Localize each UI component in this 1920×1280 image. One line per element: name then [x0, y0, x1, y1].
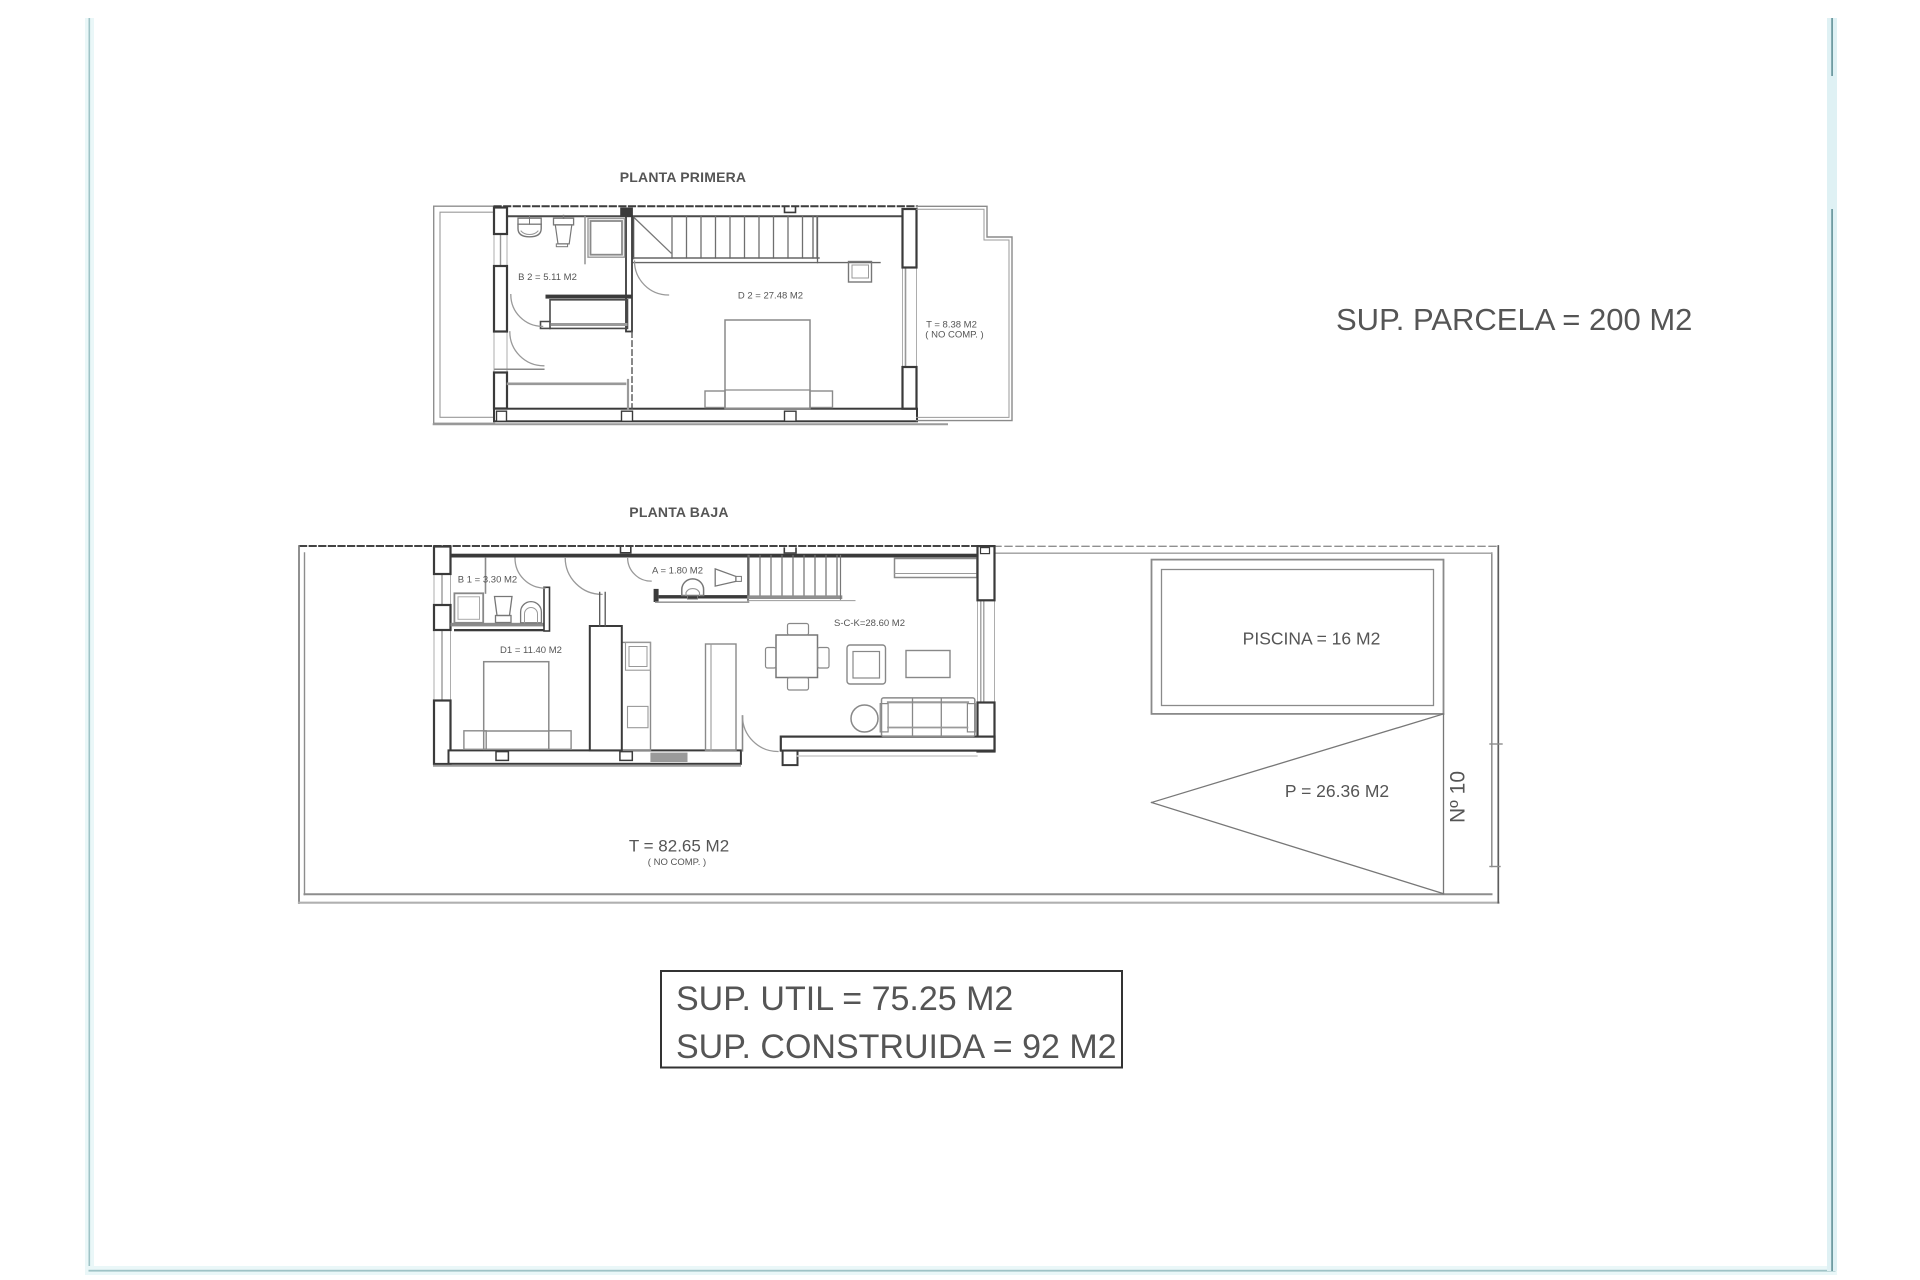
- svg-text:PLANTA BAJA: PLANTA BAJA: [629, 504, 728, 520]
- svg-text:B 1 = 3.30 M2: B 1 = 3.30 M2: [458, 575, 517, 586]
- svg-text:( NO COMP. ): ( NO COMP. ): [648, 857, 706, 868]
- svg-text:Nº 10: Nº 10: [1447, 771, 1470, 823]
- svg-text:SUP. CONSTRUIDA = 92 M2: SUP. CONSTRUIDA = 92 M2: [676, 1028, 1117, 1066]
- svg-text:S-C-K=28.60 M2: S-C-K=28.60 M2: [834, 618, 905, 629]
- svg-text:PISCINA = 16 M2: PISCINA = 16 M2: [1243, 629, 1381, 649]
- svg-text:SUP. PARCELA = 200 M2: SUP. PARCELA = 200 M2: [1336, 302, 1692, 337]
- svg-text:D1 = 11.40 M2: D1 = 11.40 M2: [500, 645, 562, 656]
- svg-text:SUP. UTIL = 75.25 M2: SUP. UTIL = 75.25 M2: [676, 980, 1013, 1018]
- svg-text:D 2 = 27.48 M2: D 2 = 27.48 M2: [738, 291, 803, 302]
- svg-text:A = 1.80 M2: A = 1.80 M2: [652, 566, 703, 577]
- svg-text:P = 26.36 M2: P = 26.36 M2: [1285, 781, 1389, 801]
- svg-text:PLANTA PRIMERA: PLANTA PRIMERA: [620, 169, 746, 185]
- svg-text:T = 82.65 M2: T = 82.65 M2: [629, 837, 729, 856]
- svg-text:B 2 = 5.11 M2: B 2 = 5.11 M2: [518, 272, 577, 283]
- svg-text:( NO COMP. ): ( NO COMP. ): [925, 330, 983, 341]
